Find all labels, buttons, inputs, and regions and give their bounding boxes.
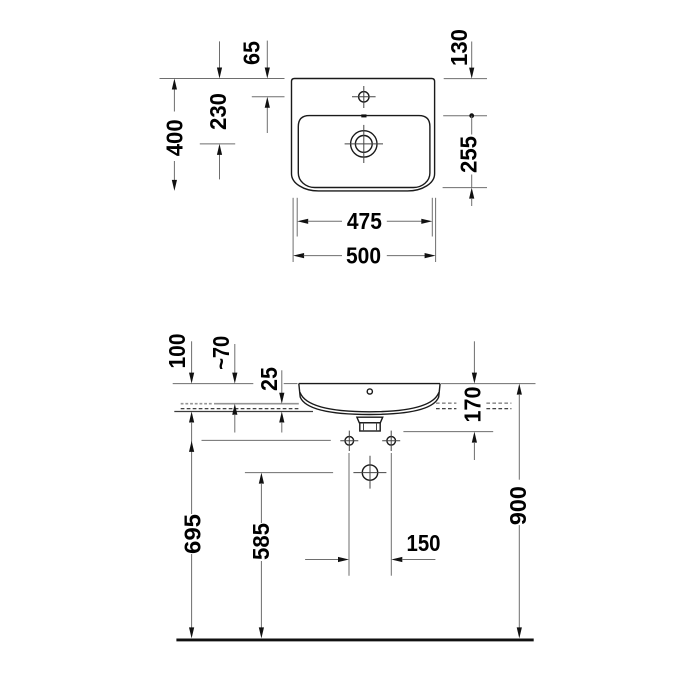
svg-text:695: 695 [180, 514, 206, 554]
svg-text:150: 150 [407, 530, 441, 556]
svg-text:900: 900 [505, 486, 531, 525]
svg-text:25: 25 [256, 367, 282, 391]
svg-text:255: 255 [456, 136, 482, 173]
svg-text:230: 230 [205, 93, 231, 130]
svg-text:100: 100 [164, 334, 190, 369]
svg-text:170: 170 [460, 387, 486, 423]
svg-text:475: 475 [347, 208, 382, 234]
svg-text:65: 65 [239, 41, 265, 65]
svg-text:~70: ~70 [208, 336, 234, 370]
svg-text:400: 400 [162, 119, 188, 156]
svg-text:130: 130 [446, 29, 472, 66]
svg-text:585: 585 [248, 523, 274, 560]
svg-text:500: 500 [346, 242, 381, 268]
